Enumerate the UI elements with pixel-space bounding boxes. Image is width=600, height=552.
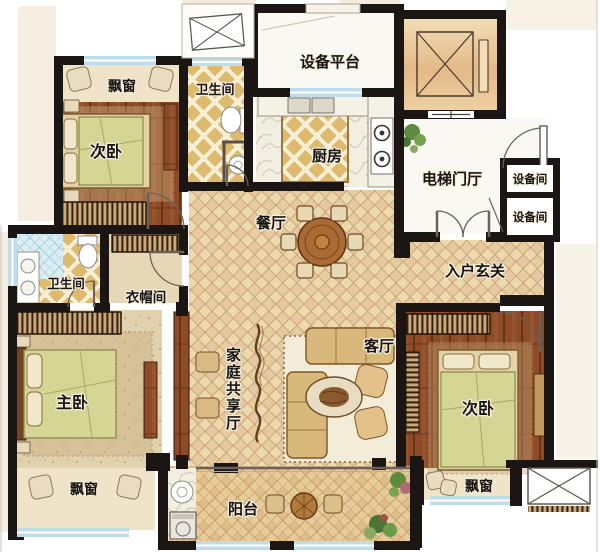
equipment-platform-floor — [258, 12, 396, 90]
flue-box — [182, 4, 254, 58]
bay-master-label: 飘窗 — [70, 481, 98, 498]
bedroom-top-left-label: 次卧 — [90, 142, 122, 161]
bay-right-label: 飘窗 — [465, 478, 493, 495]
equipment-room-2-label: 设备间 — [513, 210, 548, 224]
elevator-door-ticks — [428, 111, 474, 118]
master-wardrobe — [17, 312, 121, 334]
family-hall-label: 家庭共享厅 — [224, 346, 242, 432]
ac-platform-box — [528, 468, 590, 512]
bedroom-right-label: 次卧 — [462, 399, 494, 418]
window-bathroom-top — [192, 58, 242, 66]
hall-wood-screen — [174, 312, 189, 460]
bathroom-master-label: 卫生间 — [47, 276, 85, 291]
floor-plan-svg: 飘窗 次卧 卫生间 设备平台 厨房 电梯门厅 设备间 设备间 餐厅 入户玄关 卫… — [0, 0, 600, 552]
cloakroom-shelves — [112, 235, 178, 252]
bay-top-left-label: 飘窗 — [108, 78, 136, 95]
window-bathroom-master — [8, 238, 17, 286]
cloakroom-label: 衣帽间 — [126, 289, 167, 306]
window-bay-right — [430, 496, 510, 505]
entry-foyer-label: 入户玄关 — [445, 262, 505, 280]
living-room-label: 客厅 — [363, 337, 394, 355]
kitchen-rug — [282, 108, 348, 182]
window-kitchen-platform — [290, 88, 362, 97]
wardrobe-top-left — [62, 202, 146, 226]
wardrobe-right — [406, 314, 490, 334]
master-bed — [15, 312, 157, 456]
floor-plan-image: 飘窗 次卧 卫生间 设备平台 厨房 电梯门厅 设备间 设备间 餐厅 入户玄关 卫… — [0, 0, 600, 552]
master-bedroom-label: 主卧 — [56, 393, 88, 412]
balcony-label: 阳台 — [228, 500, 258, 518]
equipment-room-1-label: 设备间 — [513, 172, 548, 186]
elevator-lobby-label: 电梯门厅 — [422, 170, 482, 188]
kitchen-label: 厨房 — [312, 147, 342, 165]
window-balcony-2 — [294, 541, 374, 550]
window-bay-top-left — [84, 56, 156, 65]
dining-room-label: 餐厅 — [256, 214, 286, 232]
window-bay-master — [17, 528, 129, 537]
window-balcony-1 — [196, 541, 270, 550]
bathroom-top-label: 卫生间 — [195, 82, 234, 98]
equipment-platform-label: 设备平台 — [300, 53, 360, 71]
